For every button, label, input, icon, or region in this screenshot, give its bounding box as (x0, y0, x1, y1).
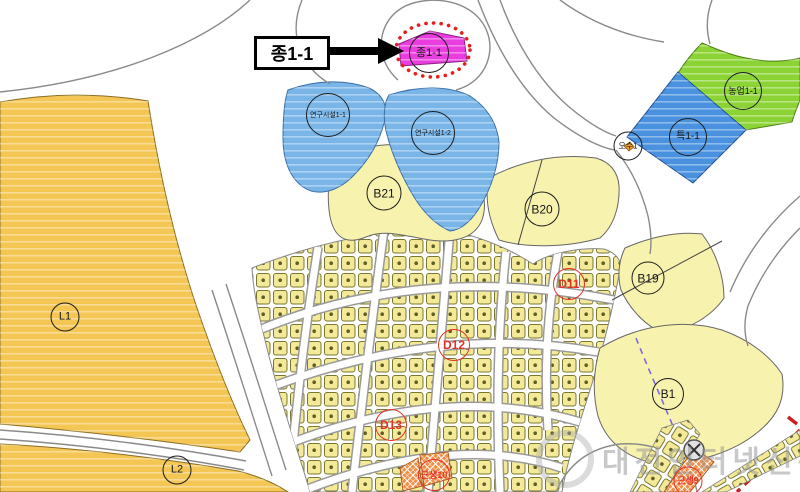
zone-label-l1: L1 (51, 303, 80, 332)
zone-label-b20: B20 (525, 192, 560, 227)
marker-label-d11: D11 (553, 268, 585, 300)
zone-label-nongeop1-1: 농업1-1 (724, 72, 762, 110)
zone-label-yeongu1-1: 연구시설1-1 (306, 93, 350, 137)
marker-label-geunsaeng10: 근생10 (418, 459, 450, 491)
zone-label-yeongu1-2: 연구시설1-2 (411, 111, 455, 155)
marker-label-d12: D12 (438, 329, 470, 361)
zone-label-l2: L2 (163, 456, 192, 485)
marker-label-d13: D13 (375, 409, 407, 441)
zone-label-jong1-1: 종1-1 (409, 33, 449, 73)
rotary-icon (684, 440, 704, 460)
zone-label-teuk1-1: 특1-1 (669, 118, 707, 156)
zone-label-b21: B21 (367, 176, 402, 211)
zone-label-osu1: 오수1 (614, 132, 643, 161)
callout-box: 종1-1 (254, 36, 330, 70)
zoning-map-canvas: 대전인터넷신문 종1-1 종1-1 연구시설1-1 연구시설1-2 농업1-1 … (0, 0, 800, 492)
marker-label-geunsaeng9: 근생9 (674, 467, 703, 492)
zone-label-b19: B19 (632, 262, 665, 295)
zone-label-b1: B1 (652, 378, 684, 410)
